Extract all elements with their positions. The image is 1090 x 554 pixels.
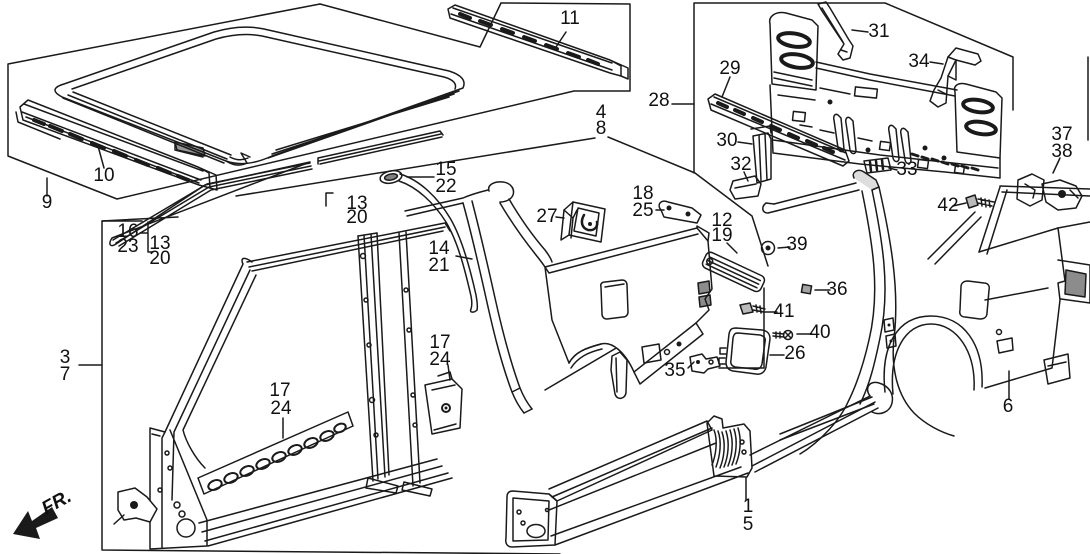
svg-text:11: 11 [560, 8, 580, 29]
svg-text:36: 36 [826, 279, 847, 300]
svg-text:19: 19 [711, 225, 732, 246]
svg-text:7: 7 [60, 364, 71, 385]
svg-text:31: 31 [868, 21, 889, 42]
svg-text:22: 22 [435, 176, 456, 197]
svg-text:10: 10 [93, 165, 114, 186]
svg-text:35: 35 [664, 360, 685, 381]
svg-text:27: 27 [536, 206, 557, 227]
svg-text:40: 40 [809, 322, 830, 343]
svg-text:30: 30 [716, 130, 737, 151]
svg-text:23: 23 [117, 236, 138, 257]
svg-text:9: 9 [42, 192, 53, 213]
svg-text:41: 41 [773, 301, 794, 322]
svg-text:34: 34 [908, 51, 930, 72]
svg-text:24: 24 [270, 398, 292, 419]
svg-text:20: 20 [346, 207, 367, 228]
svg-text:21: 21 [428, 255, 449, 276]
svg-text:20: 20 [149, 248, 170, 269]
svg-text:5: 5 [743, 514, 754, 535]
svg-text:28: 28 [648, 90, 669, 111]
svg-text:39: 39 [786, 234, 807, 255]
svg-text:8: 8 [596, 118, 607, 139]
svg-text:38: 38 [1051, 141, 1072, 162]
svg-text:25: 25 [632, 200, 653, 221]
svg-text:24: 24 [429, 349, 451, 370]
svg-text:26: 26 [784, 343, 805, 364]
svg-text:32: 32 [730, 154, 751, 175]
svg-text:42: 42 [937, 195, 958, 216]
svg-text:29: 29 [719, 58, 740, 79]
svg-text:6: 6 [1003, 396, 1014, 417]
